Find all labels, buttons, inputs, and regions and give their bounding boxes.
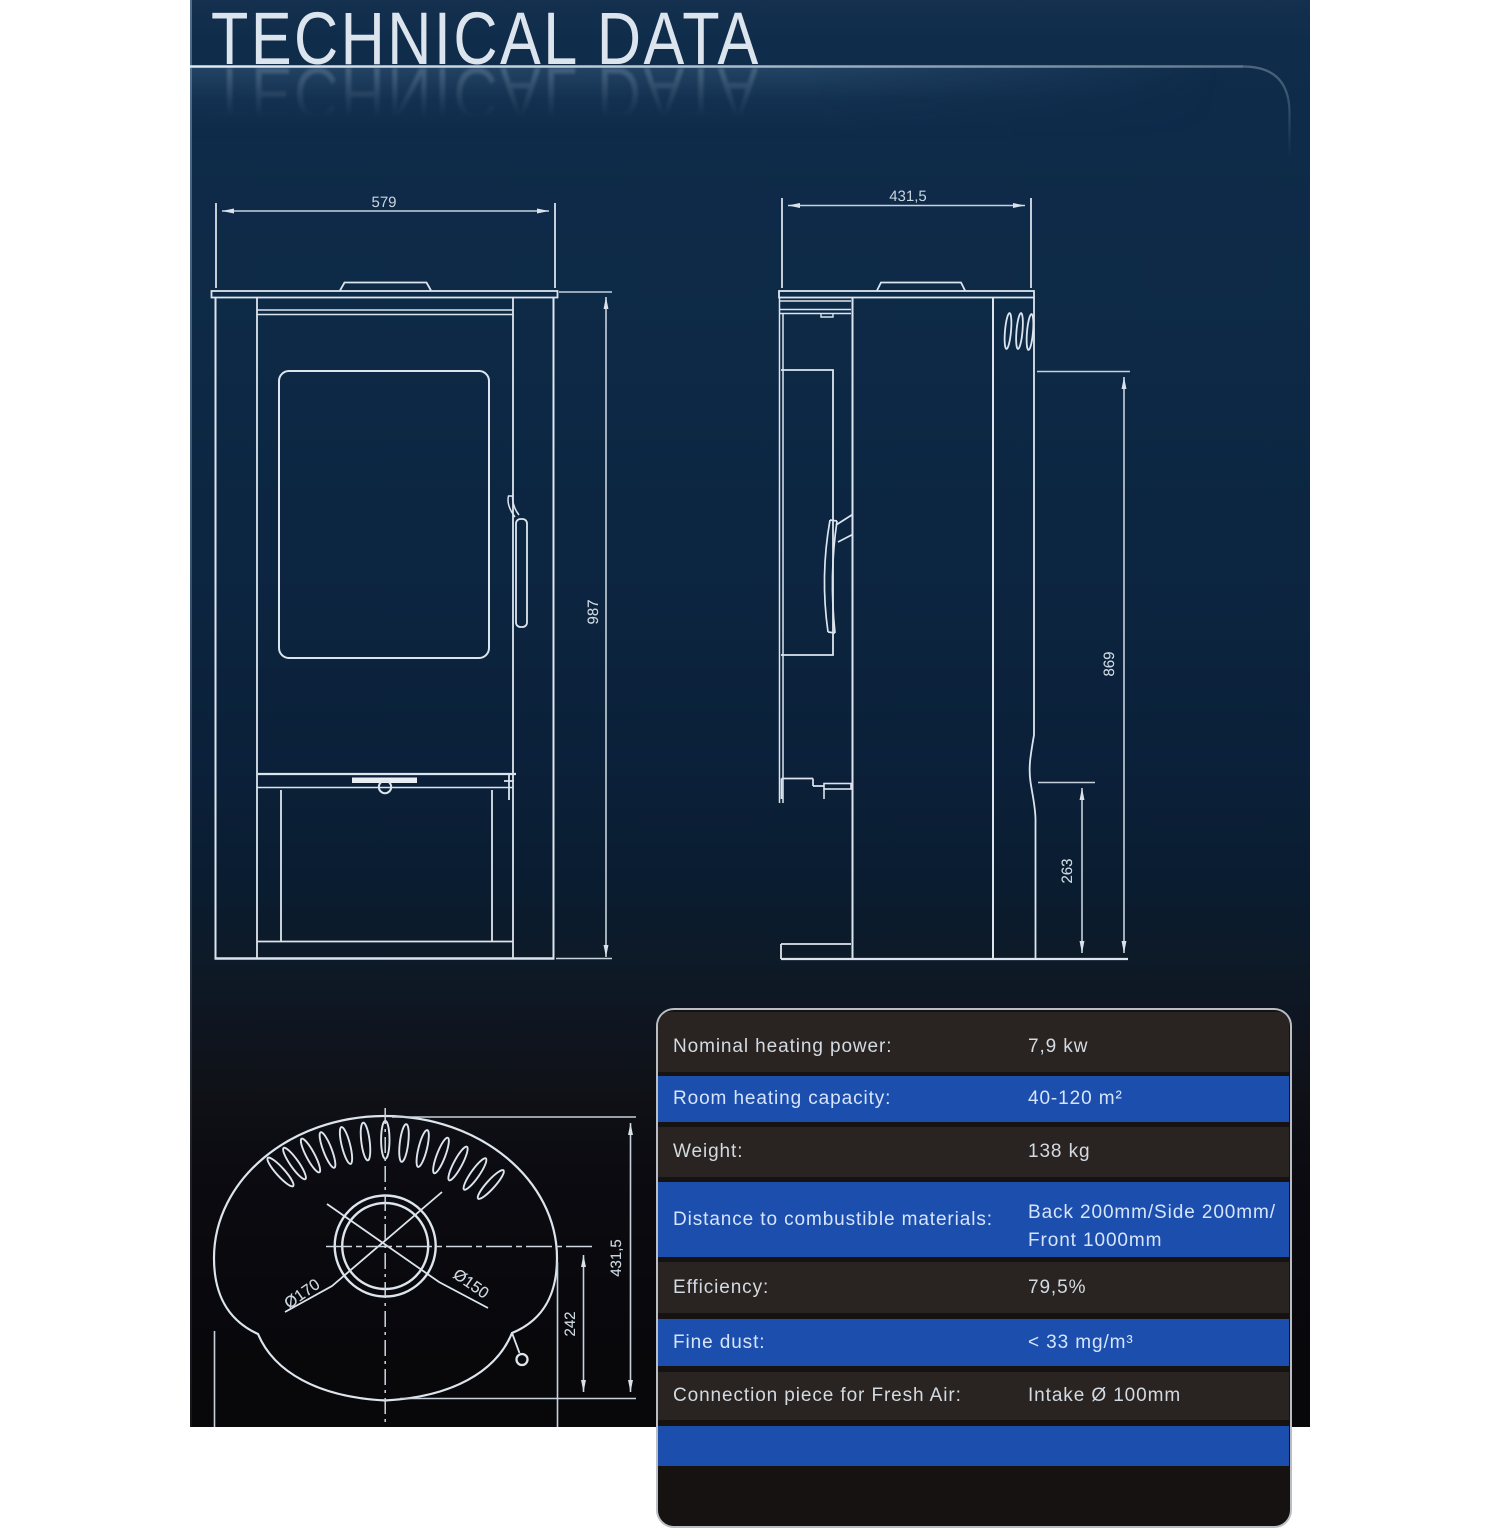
svg-text:Ø150: Ø150 (450, 1266, 492, 1302)
svg-text:431,5: 431,5 (608, 1239, 625, 1277)
svg-text:263: 263 (1059, 858, 1076, 883)
svg-text:987: 987 (585, 599, 602, 624)
svg-text:431,5: 431,5 (889, 188, 927, 205)
svg-text:579: 579 (371, 194, 396, 211)
svg-text:242: 242 (562, 1311, 579, 1336)
svg-text:869: 869 (1101, 651, 1118, 676)
svg-text:Ø170: Ø170 (282, 1276, 324, 1312)
